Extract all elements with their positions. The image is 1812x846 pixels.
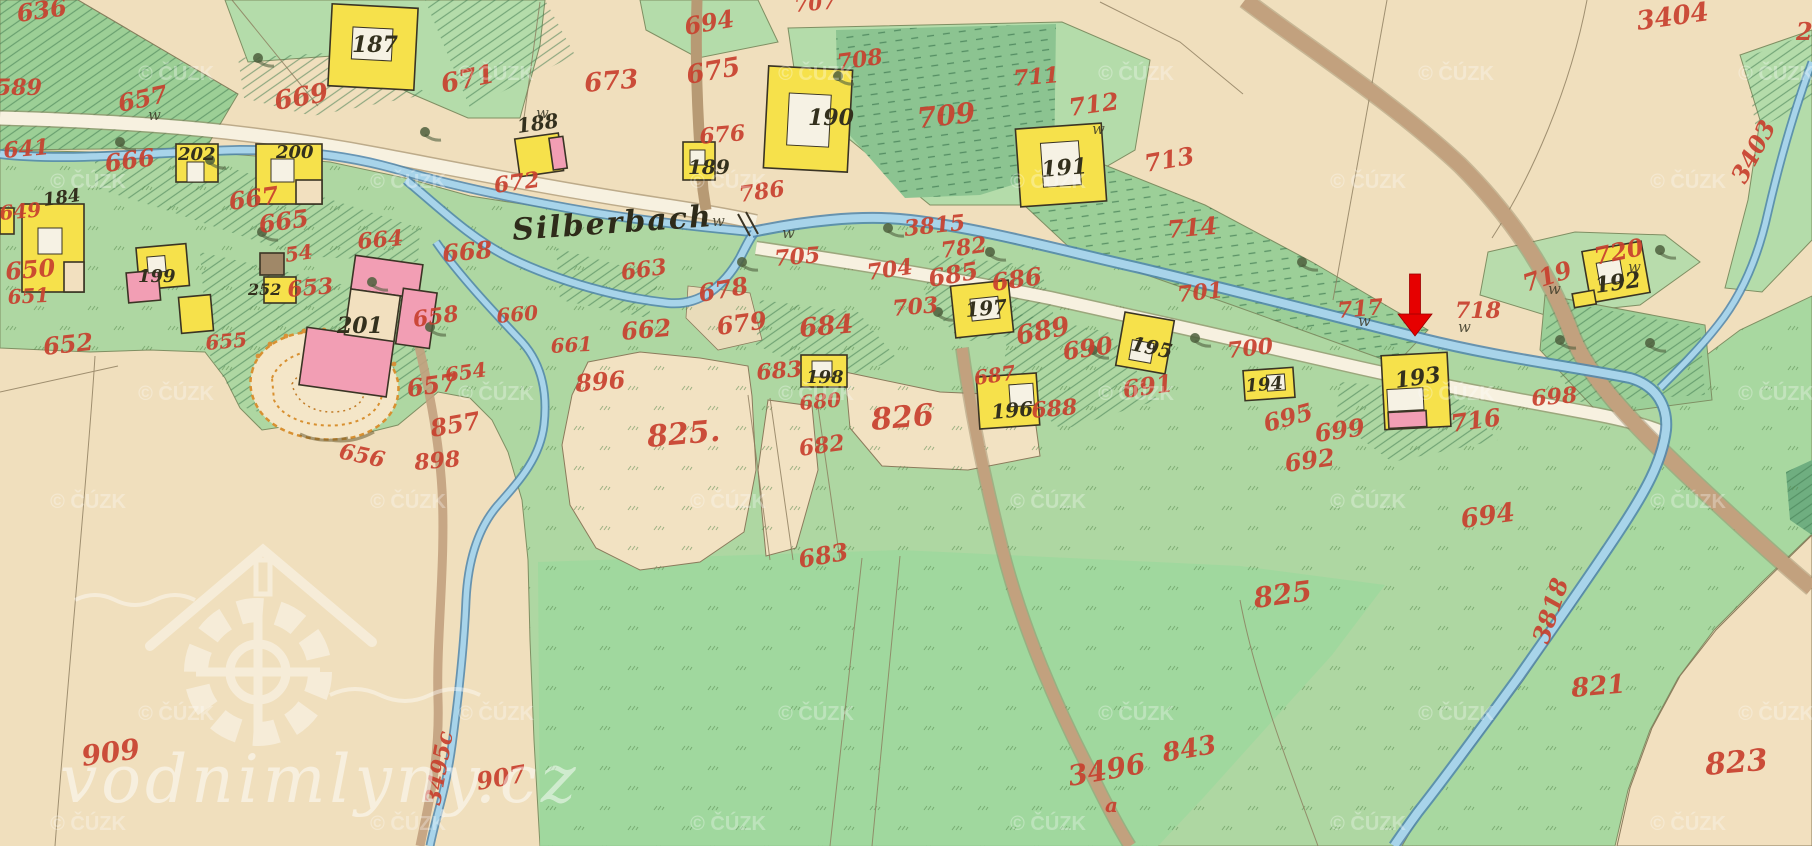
house-number: 199: [138, 266, 176, 287]
parcel-number: 700: [1226, 333, 1275, 364]
parcel-number: 651: [7, 283, 50, 309]
copyright-watermark: © ČÚZK: [1098, 701, 1174, 725]
parcel-number: 650: [4, 253, 57, 286]
copyright-watermark: © ČÚZK: [1010, 489, 1086, 513]
copyright-watermark: © ČÚZK: [1418, 61, 1494, 85]
copyright-watermark: © ČÚZK: [458, 701, 534, 725]
meadow-symbol: w: [782, 224, 795, 242]
copyright-watermark: © ČÚZK: [1650, 489, 1726, 513]
parcel-number: 823: [1703, 743, 1769, 783]
parcel-number: 660: [495, 300, 539, 328]
parcel-number: 703: [891, 292, 939, 322]
parcel-number: 898: [412, 446, 461, 476]
parcel-number: 711: [1012, 62, 1060, 92]
copyright-watermark: © ČÚZK: [1010, 811, 1086, 835]
copyright-watermark: © ČÚZK: [778, 381, 854, 405]
copyright-watermark: © ČÚZK: [138, 381, 214, 405]
house-number: 252: [247, 280, 281, 299]
copyright-watermark: © ČÚZK: [1738, 701, 1812, 725]
building: [178, 295, 213, 334]
copyright-watermark: © ČÚZK: [1418, 701, 1494, 725]
meadow-symbol: w: [1092, 120, 1105, 138]
house-number: 200: [275, 142, 314, 163]
copyright-watermark: © ČÚZK: [690, 811, 766, 835]
copyright-watermark: © ČÚZK: [1738, 381, 1812, 405]
parcel-number: 673: [583, 64, 640, 99]
parcel-number: 653: [286, 273, 334, 303]
house-number: 197: [964, 294, 1008, 322]
copyright-watermark: © ČÚZK: [1738, 61, 1812, 85]
meadow-symbol: w: [712, 212, 725, 230]
red-arrow-marker-shaft: [1410, 274, 1421, 316]
copyright-watermark: © ČÚZK: [1330, 811, 1406, 835]
parcel-number: 664: [356, 225, 404, 255]
copyright-watermark: © ČÚZK: [1650, 811, 1726, 835]
parcel-number: 641: [2, 134, 50, 164]
copyright-watermark: © ČÚZK: [138, 701, 214, 725]
copyright-watermark: © ČÚZK: [1098, 61, 1174, 85]
copyright-watermark: © ČÚZK: [50, 489, 126, 513]
cadastral-map-canvas[interactable]: wwwwwwwww 636589657669641666667665664546…: [0, 0, 1812, 846]
house-number: 190: [808, 105, 855, 131]
parcel-number: 2: [1795, 17, 1812, 46]
parcel-number: 661: [550, 332, 593, 358]
house-number: 196: [990, 396, 1034, 424]
parcel-number: 718: [1455, 298, 1501, 324]
copyright-watermark: © ČÚZK: [1098, 381, 1174, 405]
parcel-number: 825.: [645, 414, 722, 455]
copyright-watermark: © ČÚZK: [370, 489, 446, 513]
parcel-number: 683: [755, 356, 803, 386]
copyright-watermark: © ČÚZK: [50, 169, 126, 193]
copyright-watermark: © ČÚZK: [1650, 169, 1726, 193]
parcel-number: 821: [1569, 669, 1627, 704]
house-number: 201: [336, 313, 383, 339]
parcel-number: a: [1105, 793, 1118, 817]
site-watermark: vodnimlyny.cz: [60, 741, 580, 818]
parcel-number: 688: [1030, 394, 1078, 424]
parcel-number: 649: [0, 197, 42, 225]
parcel-number: 698: [1530, 382, 1578, 412]
parcel-number: 652: [42, 327, 95, 361]
parcel-number: 662: [620, 313, 672, 346]
parcel-number: 684: [798, 309, 855, 344]
parcel-number: 826: [869, 398, 936, 438]
copyright-watermark: © ČÚZK: [1330, 489, 1406, 513]
copyright-watermark: © ČÚZK: [690, 169, 766, 193]
copyright-watermark: © ČÚZK: [370, 169, 446, 193]
parcel-number: 705: [773, 242, 821, 272]
house-number: 194: [1245, 373, 1284, 397]
house-number: 202: [177, 144, 216, 165]
copyright-watermark: © ČÚZK: [458, 61, 534, 85]
parcel-number: 896: [573, 365, 627, 398]
house-number: 187: [352, 32, 399, 58]
parcel-number: 668: [441, 235, 494, 268]
parcel-number: 676: [698, 120, 746, 150]
parcel-number: 701: [1176, 277, 1224, 308]
parcel-number: 709: [915, 96, 977, 135]
parcel-number: 717: [1336, 294, 1385, 324]
copyright-watermark: © ČÚZK: [1330, 169, 1406, 193]
parcel-number: 655: [204, 327, 248, 355]
copyright-watermark: © ČÚZK: [1010, 169, 1086, 193]
copyright-watermark: © ČÚZK: [138, 61, 214, 85]
copyright-watermark: © ČÚZK: [1418, 381, 1494, 405]
parcel-number: 714: [1166, 211, 1218, 244]
parcel-number: 589: [0, 75, 42, 101]
copyright-watermark: © ČÚZK: [690, 489, 766, 513]
copyright-watermark: © ČÚZK: [778, 701, 854, 725]
map-viewport[interactable]: wwwwwwwww 636589657669641666667665664546…: [0, 0, 1812, 846]
copyright-watermark: © ČÚZK: [458, 381, 534, 405]
copyright-watermark: © ČÚZK: [778, 61, 854, 85]
parcel-number: 54: [283, 239, 314, 267]
